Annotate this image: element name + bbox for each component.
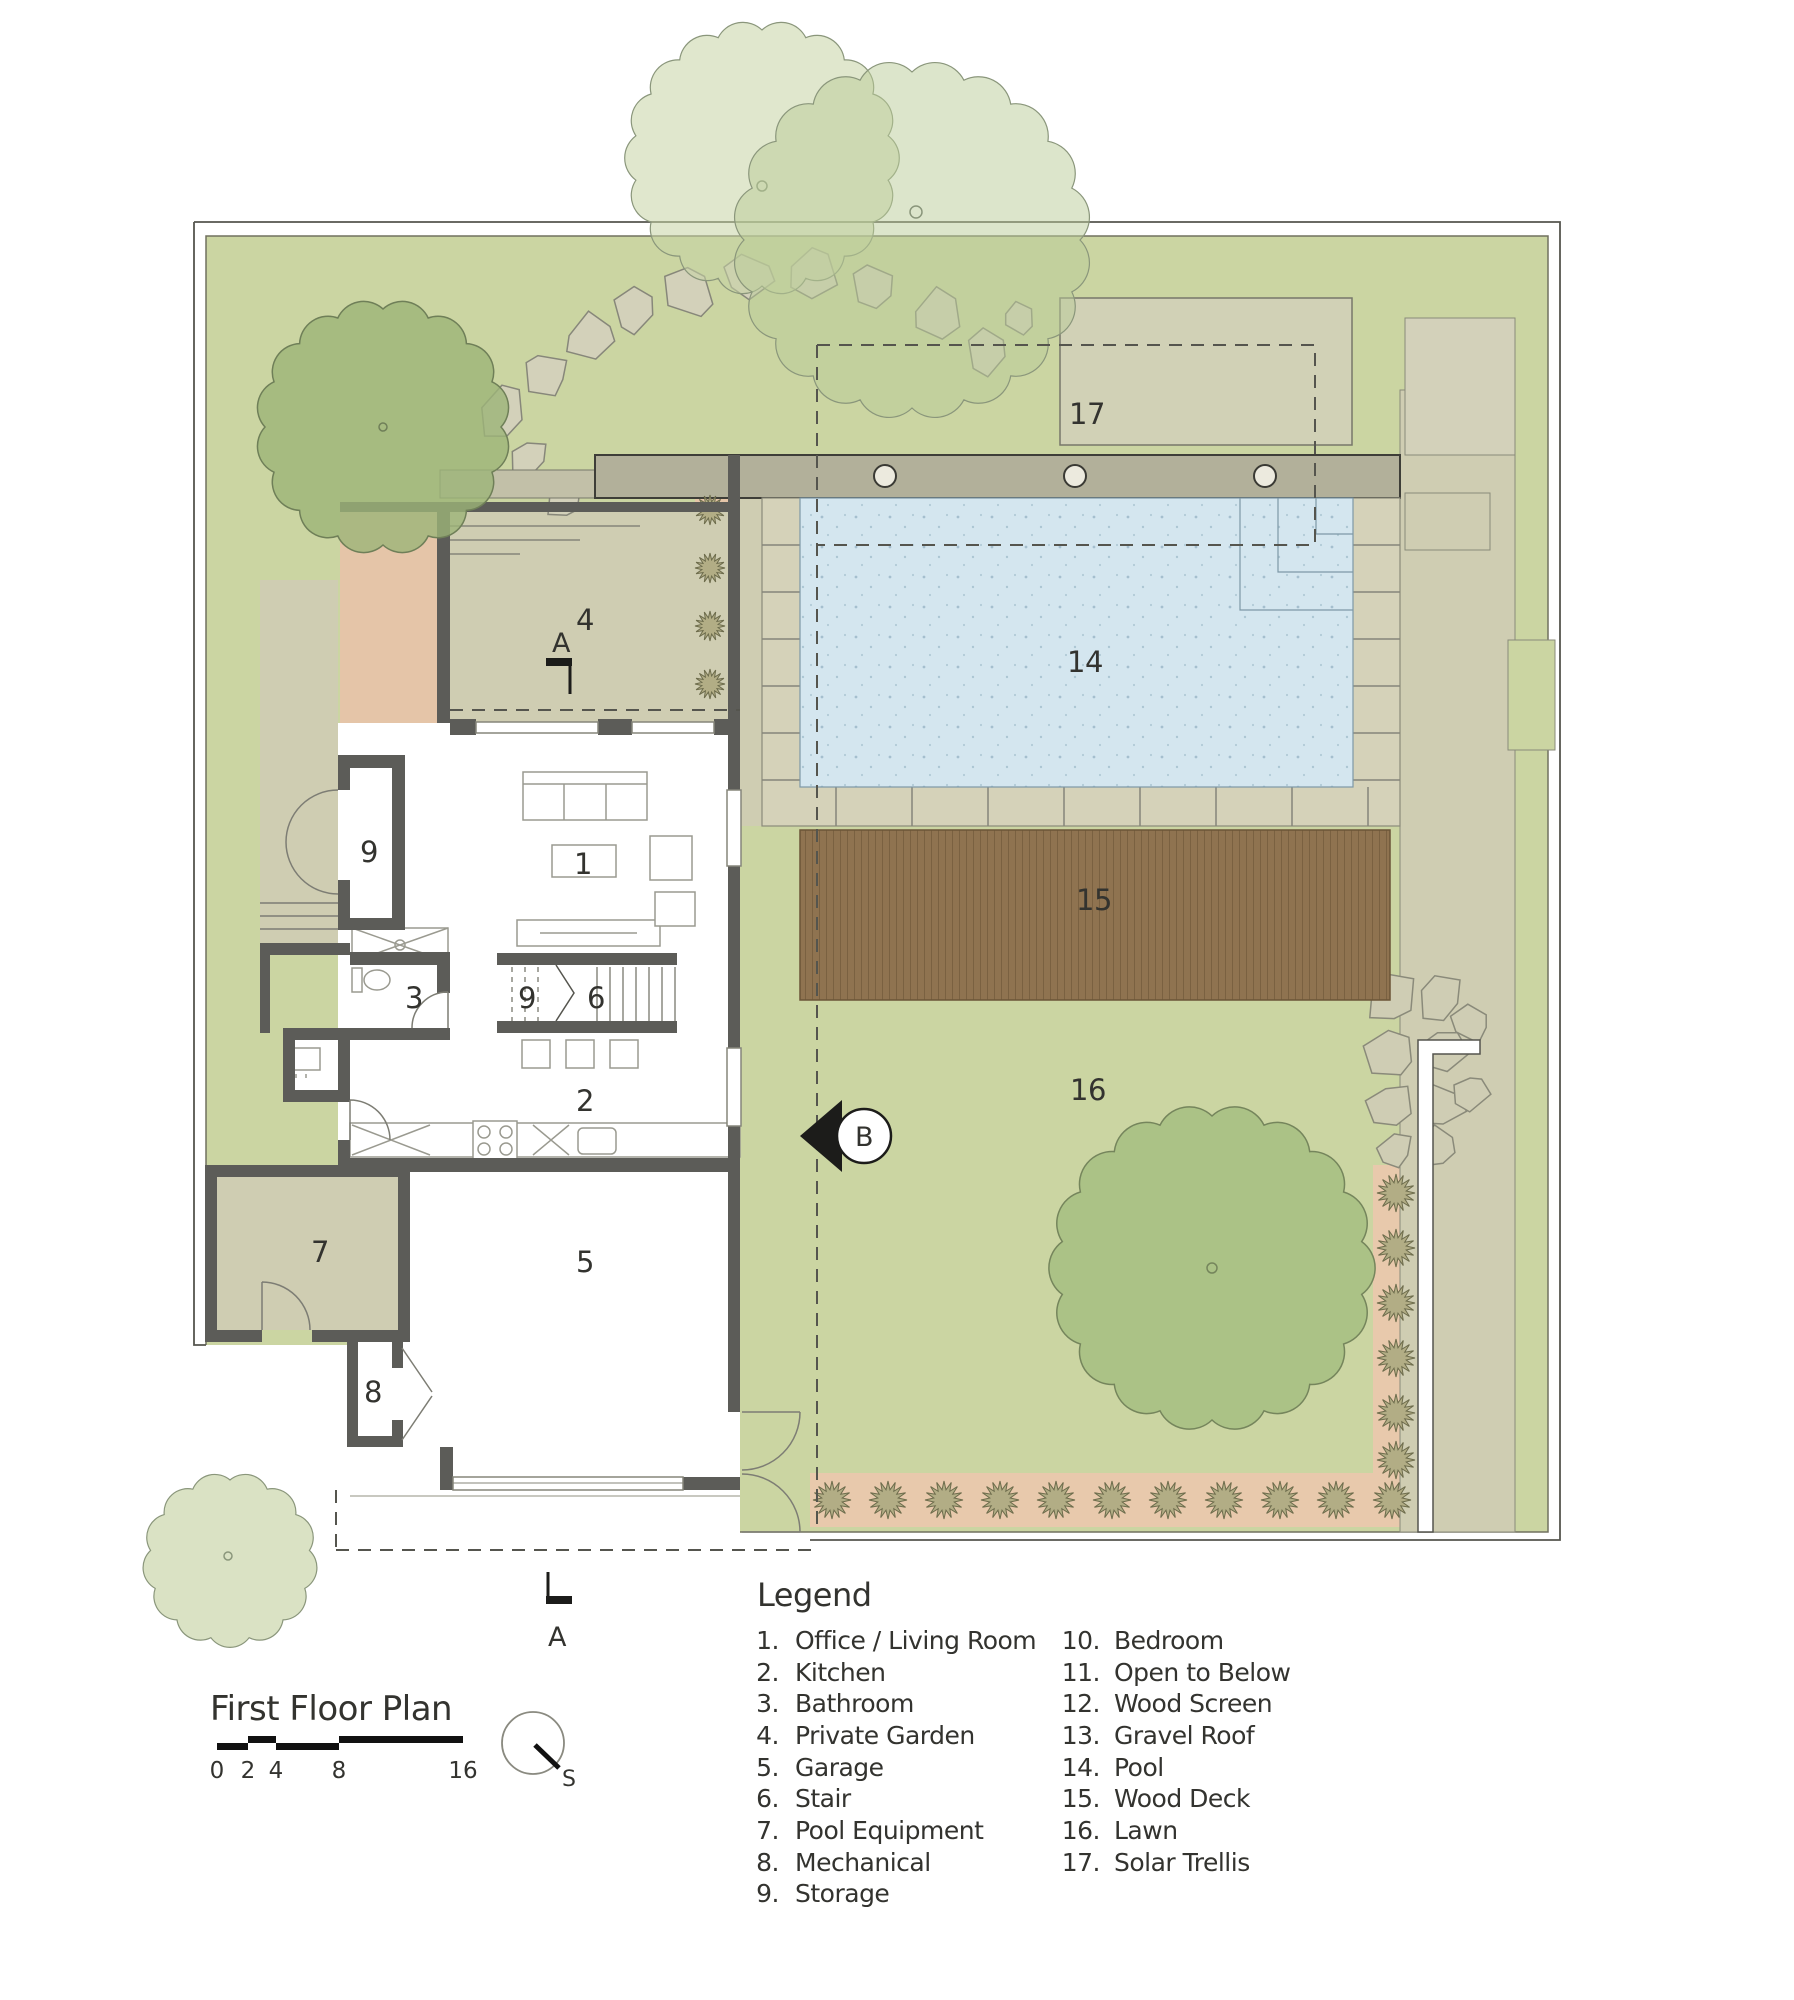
- wall-garage-se: [683, 1477, 740, 1490]
- side-yard-strip: [260, 580, 338, 955]
- label-wood-deck: 15: [1076, 883, 1112, 917]
- wall-east-a: [728, 732, 740, 790]
- legend-num: 10.: [1062, 1626, 1100, 1655]
- wall-east-b: [728, 866, 740, 1048]
- shrub: [695, 669, 725, 699]
- shrub: [1377, 1339, 1415, 1377]
- shrub: [1037, 1481, 1075, 1519]
- legend-num: 14.: [1062, 1753, 1100, 1782]
- wall-poolequip-bottom-b: [312, 1330, 410, 1342]
- legend-label: Bedroom: [1114, 1626, 1224, 1655]
- shrub: [1377, 1174, 1415, 1212]
- scale-seg: [217, 1743, 248, 1750]
- legend-label: Garage: [795, 1753, 884, 1782]
- section-marker-a-top-flag: [546, 658, 572, 666]
- compass-needle: [535, 1745, 559, 1768]
- column: [874, 465, 896, 487]
- wall-garage-east: [728, 1172, 740, 1412]
- scale-tick: 4: [269, 1758, 284, 1784]
- shrub: [981, 1481, 1019, 1519]
- legend-label: Storage: [795, 1879, 889, 1908]
- legend-num: 4.: [756, 1721, 779, 1750]
- kitchen-sink: [578, 1128, 616, 1154]
- wall-storage-top: [338, 755, 405, 768]
- scale-tick: 2: [241, 1758, 256, 1784]
- toilet-tank: [352, 968, 362, 992]
- section-marker-b-label: B: [855, 1122, 874, 1153]
- legend-label: Mechanical: [795, 1848, 931, 1877]
- chair: [610, 1040, 638, 1068]
- floor-plan-sheet: A A B 1 2 3 4 5 6 7 8 9 9 14 15 16 17 Fi…: [0, 0, 1794, 2000]
- legend-label: Kitchen: [795, 1658, 885, 1687]
- label-pool: 14: [1067, 645, 1103, 679]
- label-stair: 6: [587, 981, 605, 1015]
- column: [1254, 465, 1276, 487]
- legend-num: 1.: [756, 1626, 779, 1655]
- label-bathroom: 3: [405, 981, 423, 1015]
- shrub: [1377, 1394, 1415, 1432]
- roof-band-main: [595, 455, 1400, 498]
- legend-label: Stair: [795, 1784, 852, 1813]
- north-compass: S: [502, 1712, 576, 1792]
- wall-poolequip-west: [205, 1177, 217, 1342]
- shrub: [925, 1481, 963, 1519]
- wall-storage-bottom: [338, 918, 405, 930]
- label-pool-equipment: 7: [311, 1235, 329, 1269]
- legend-label: Open to Below: [1114, 1658, 1291, 1687]
- shrub: [695, 553, 725, 583]
- floor-plan-drawing: A A B 1 2 3 4 5 6 7 8 9 9 14 15 16 17 Fi…: [0, 0, 1794, 2000]
- pool-speckle: [800, 498, 1353, 787]
- side-table: [655, 892, 695, 926]
- shrub: [1377, 1229, 1415, 1267]
- legend-label: Wood Deck: [1114, 1784, 1251, 1813]
- window-north-a: [476, 722, 598, 733]
- legend-num: 7.: [756, 1816, 779, 1845]
- legend-num: 11.: [1062, 1658, 1100, 1687]
- wall-storage-west-b: [338, 880, 350, 918]
- wall-storage-east: [392, 768, 405, 930]
- sofa: [523, 772, 647, 820]
- legend-label: Wood Screen: [1114, 1689, 1272, 1718]
- chair: [566, 1040, 594, 1068]
- wall-poolequip-east: [398, 1177, 410, 1342]
- legend-num: 5.: [756, 1753, 779, 1782]
- scale-tick: 16: [448, 1758, 477, 1784]
- wall-corridor-a: [338, 1040, 350, 1100]
- stair-wall-bottom: [497, 1021, 677, 1033]
- section-marker-a-top-label: A: [552, 628, 571, 659]
- legend-label: Lawn: [1114, 1816, 1178, 1845]
- legend-label: Pool: [1114, 1753, 1164, 1782]
- legend-label: Pool Equipment: [795, 1816, 984, 1845]
- toilet-bowl: [364, 970, 390, 990]
- wall-east-c: [728, 1126, 740, 1172]
- window-north-b: [632, 722, 714, 733]
- label-mechanical: 8: [364, 1375, 382, 1409]
- label-kitchen: 2: [576, 1084, 594, 1118]
- legend-label: Gravel Roof: [1114, 1721, 1256, 1750]
- wall-bath-top: [350, 952, 450, 965]
- label-solar-trellis: 17: [1069, 397, 1105, 431]
- scale-seg: [276, 1743, 339, 1750]
- legend: Legend 1. Office / Living Room 2. Kitche…: [756, 1576, 1290, 1908]
- chair: [522, 1040, 550, 1068]
- east-paved-upper: [1405, 318, 1515, 455]
- scale-bar: 0 2 4 8 16: [210, 1736, 478, 1784]
- wall-garage-sw: [440, 1447, 453, 1490]
- legend-heading: Legend: [757, 1576, 872, 1614]
- wall-poolequip-bottom-a: [205, 1330, 262, 1342]
- wall-bath-east: [437, 965, 450, 993]
- shrub: [1317, 1481, 1355, 1519]
- scale-seg: [339, 1736, 463, 1743]
- wall-powder-west: [283, 1028, 295, 1100]
- shrub: [1377, 1284, 1415, 1322]
- legend-num: 13.: [1062, 1721, 1100, 1750]
- shrub: [1261, 1481, 1299, 1519]
- shrub: [1149, 1481, 1187, 1519]
- kitchen-counter: [350, 1123, 740, 1157]
- column: [1064, 465, 1086, 487]
- shrub: [1205, 1481, 1243, 1519]
- wall-mech-east-a: [392, 1342, 403, 1368]
- title-block: First Floor Plan 0 2 4 8 16 S: [210, 1689, 576, 1792]
- tree-canopy-southwest: [143, 1474, 317, 1647]
- tree-canopy-lawn: [1049, 1107, 1375, 1429]
- shrub: [869, 1481, 907, 1519]
- legend-label: Solar Trellis: [1114, 1848, 1250, 1877]
- legend-num: 6.: [756, 1784, 779, 1813]
- scale-tick: 0: [210, 1758, 225, 1784]
- wall-storage-west-a: [338, 768, 350, 790]
- section-marker-a-bottom-label: A: [548, 1622, 567, 1653]
- legend-num: 2.: [756, 1658, 779, 1687]
- pool-equipment-floor: [217, 1177, 398, 1330]
- legend-num: 8.: [756, 1848, 779, 1877]
- label-garage: 5: [576, 1245, 594, 1279]
- shrub: [1373, 1481, 1411, 1519]
- wall-west: [260, 952, 270, 1033]
- legend-num: 16.: [1062, 1816, 1100, 1845]
- boundary-line-left: [194, 222, 206, 1345]
- legend-label: Private Garden: [795, 1721, 975, 1750]
- stair-wall-top: [497, 953, 677, 965]
- wall-west-step: [260, 943, 350, 955]
- section-marker-a-bottom-flag: [546, 1596, 572, 1604]
- label-office-living: 1: [574, 847, 592, 881]
- legend-label: Bathroom: [795, 1689, 914, 1718]
- label-storage-understair: 9: [518, 981, 536, 1015]
- shrub: [813, 1481, 851, 1519]
- compass-south-label: S: [562, 1767, 576, 1792]
- wall-mech-east-b: [392, 1420, 403, 1447]
- window-east-b: [727, 1048, 741, 1126]
- wall-bath-bottom: [283, 1028, 450, 1040]
- shrub: [1377, 1441, 1415, 1479]
- shrub: [1093, 1481, 1131, 1519]
- armchair: [650, 836, 692, 880]
- pool-west-sliver: [740, 498, 762, 826]
- wall-poolequip-top: [205, 1165, 410, 1177]
- wall-north-pier: [598, 719, 632, 735]
- label-private-garden: 4: [576, 603, 594, 637]
- legend-num: 15.: [1062, 1784, 1100, 1813]
- legend-num: 17.: [1062, 1848, 1100, 1877]
- wall-mech-west: [347, 1342, 358, 1447]
- scale-tick: 8: [332, 1758, 347, 1784]
- legend-num: 9.: [756, 1879, 779, 1908]
- tree-canopy-top-b: [735, 63, 1090, 418]
- legend-num: 12.: [1062, 1689, 1100, 1718]
- window-east-a: [727, 790, 741, 866]
- shrub: [695, 611, 725, 641]
- wall-garden-west: [437, 512, 450, 723]
- label-storage-room: 9: [360, 835, 378, 869]
- label-lawn: 16: [1070, 1073, 1106, 1107]
- scale-seg: [248, 1736, 276, 1743]
- wall-north-pier: [450, 719, 476, 735]
- legend-label: Office / Living Room: [795, 1626, 1036, 1655]
- east-green-inset: [1508, 640, 1555, 750]
- legend-num: 3.: [756, 1689, 779, 1718]
- drawing-title: First Floor Plan: [210, 1689, 452, 1729]
